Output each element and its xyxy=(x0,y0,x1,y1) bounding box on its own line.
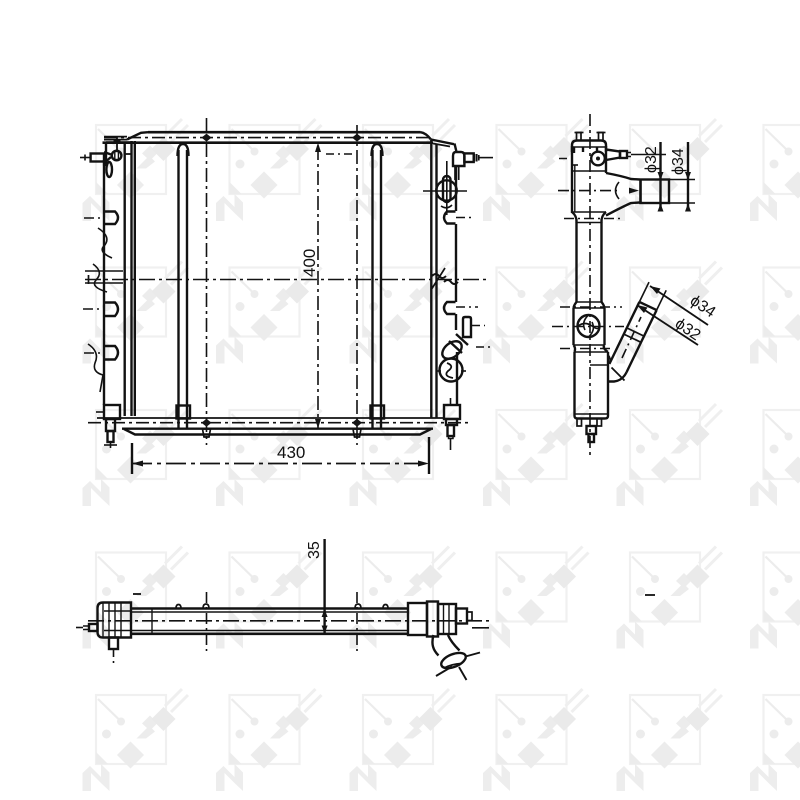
svg-text:400: 400 xyxy=(300,249,319,277)
svg-text:430: 430 xyxy=(277,443,305,462)
svg-text:35: 35 xyxy=(306,541,323,559)
svg-text:ϕ34: ϕ34 xyxy=(670,148,687,175)
svg-text:ϕ32: ϕ32 xyxy=(643,146,660,173)
